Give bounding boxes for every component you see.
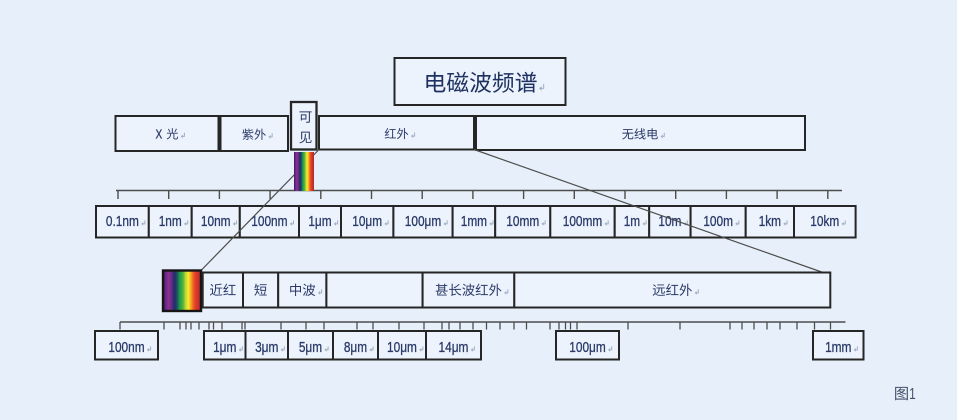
svg-text:100nm: 100nm (251, 213, 287, 230)
svg-text:0.1nm: 0.1nm (106, 213, 139, 230)
svg-text:X: X (156, 126, 163, 141)
svg-text:1nm: 1nm (159, 213, 182, 230)
svg-text:1: 1 (909, 386, 916, 403)
svg-text:5μm: 5μm (299, 339, 322, 356)
svg-text:100mm: 100mm (563, 213, 603, 230)
svg-text:1μm: 1μm (308, 213, 331, 230)
svg-text:100nm: 100nm (108, 339, 144, 356)
svg-text:1mm: 1mm (461, 213, 487, 230)
svg-text:10μm: 10μm (352, 213, 382, 230)
svg-text:3μm: 3μm (255, 339, 278, 356)
svg-text:100μm: 100μm (569, 339, 605, 356)
svg-text:10nm: 10nm (201, 213, 231, 230)
svg-text:100μm: 100μm (405, 213, 441, 230)
svg-text:14μm: 14μm (439, 339, 469, 356)
svg-text:10mm: 10mm (506, 213, 539, 230)
svg-text:1m: 1m (624, 213, 640, 230)
svg-text:100m: 100m (703, 213, 733, 230)
svg-text:1km: 1km (759, 213, 781, 230)
svg-text:10km: 10km (810, 213, 839, 230)
svg-text:1mm: 1mm (825, 339, 851, 356)
svg-text:1μm: 1μm (213, 339, 236, 356)
svg-text:8μm: 8μm (344, 339, 367, 356)
svg-text:10μm: 10μm (387, 339, 417, 356)
